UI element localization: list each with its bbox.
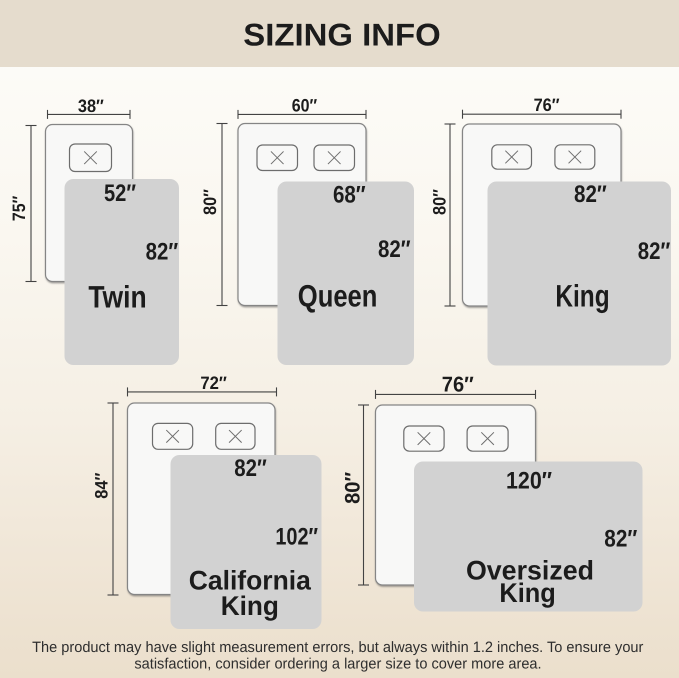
svg-text:102″: 102″ <box>275 524 318 551</box>
svg-text:52″: 52″ <box>104 180 136 207</box>
svg-text:68″: 68″ <box>333 182 366 209</box>
svg-text:75″: 75″ <box>9 195 29 221</box>
svg-text:82″: 82″ <box>574 181 607 208</box>
svg-text:80″: 80″ <box>341 472 364 504</box>
svg-text:satisfaction, consider orderin: satisfaction, consider ordering a larger… <box>134 656 541 673</box>
svg-text:72″: 72″ <box>200 373 227 393</box>
svg-text:80″: 80″ <box>430 189 450 215</box>
svg-text:82″: 82″ <box>146 239 179 266</box>
svg-text:76″: 76″ <box>534 95 560 115</box>
svg-text:King: King <box>499 578 555 608</box>
svg-text:82″: 82″ <box>234 455 267 482</box>
svg-text:The product may have slight me: The product may have slight measurement … <box>32 639 643 656</box>
svg-text:84″: 84″ <box>92 472 112 499</box>
svg-text:82″: 82″ <box>638 238 671 265</box>
svg-text:Queen: Queen <box>298 279 378 314</box>
svg-text:120″: 120″ <box>506 468 552 495</box>
svg-text:SIZING INFO: SIZING INFO <box>243 16 441 52</box>
svg-text:82″: 82″ <box>604 526 637 553</box>
svg-text:82″: 82″ <box>378 236 411 263</box>
svg-text:King: King <box>221 591 279 621</box>
svg-text:38″: 38″ <box>78 96 104 116</box>
svg-text:King: King <box>555 279 609 314</box>
svg-text:60″: 60″ <box>292 96 318 116</box>
svg-text:76″: 76″ <box>442 372 474 396</box>
svg-text:80″: 80″ <box>200 189 220 215</box>
svg-text:Twin: Twin <box>88 280 146 315</box>
